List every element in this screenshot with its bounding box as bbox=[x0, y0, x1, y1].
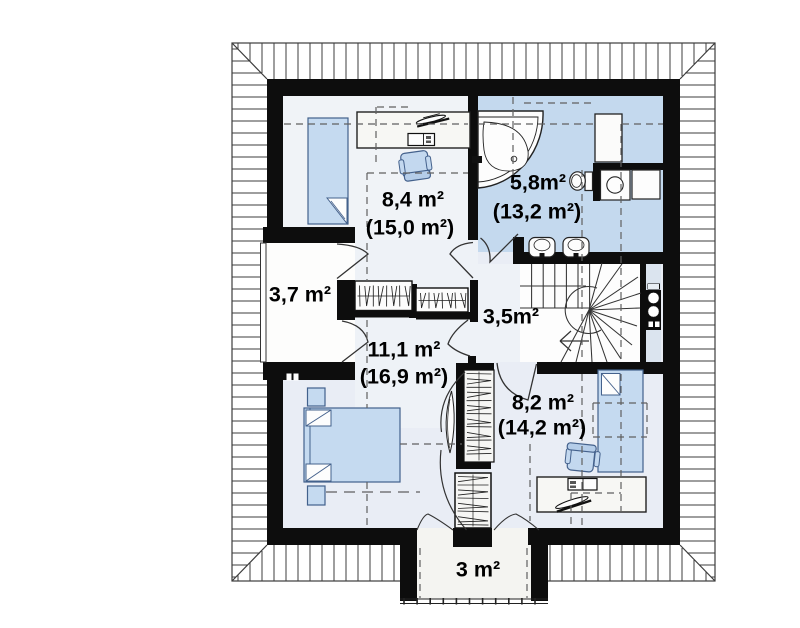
svg-text:3 m²: 3 m² bbox=[456, 558, 500, 582]
svg-text:5,8m²: 5,8m² bbox=[510, 171, 566, 195]
svg-text:3,7 m²: 3,7 m² bbox=[269, 283, 331, 307]
svg-text:(15,0 m²): (15,0 m²) bbox=[366, 216, 454, 240]
svg-text:(14,2 m²): (14,2 m²) bbox=[498, 416, 586, 440]
svg-text:8,2 m²: 8,2 m² bbox=[512, 391, 574, 415]
svg-text:(16,9 m²): (16,9 m²) bbox=[360, 365, 448, 389]
svg-text:3,5m²: 3,5m² bbox=[483, 305, 539, 329]
svg-text:11,1 m²: 11,1 m² bbox=[368, 338, 441, 362]
svg-text:(13,2 m²): (13,2 m²) bbox=[493, 200, 581, 224]
svg-text:8,4 m²: 8,4 m² bbox=[382, 188, 444, 212]
